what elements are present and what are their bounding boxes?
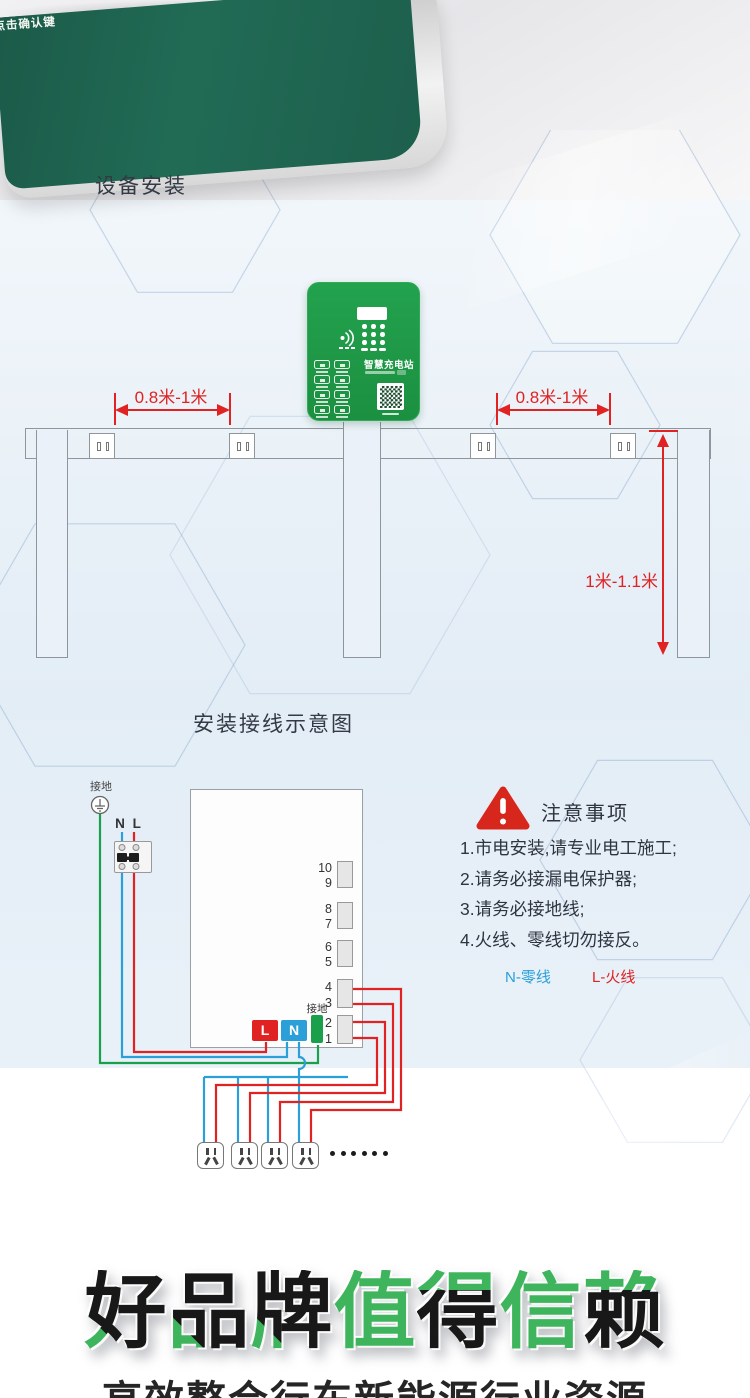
socket-slot [307, 1157, 313, 1165]
socket-slot [301, 1148, 304, 1155]
beam-leg-left [36, 430, 68, 658]
footer-headline: 好品牌值得信赖 [0, 1270, 750, 1356]
product-detail-image: 点击确认键 设备安装 安装接线示意图 智慧充电站 0.8米-1米 0.8米-1米… [0, 0, 750, 1398]
keypad-dash [370, 348, 377, 351]
device-button [314, 405, 330, 414]
legend-live: L-火线 [592, 966, 662, 987]
charging-station-photo: 点击确认键 [0, 0, 462, 218]
legend-neutral: N-零线 [505, 966, 575, 987]
notice-item: 2.请务必接漏电保护器; [460, 864, 750, 895]
keypad-dash [361, 348, 368, 351]
terminal-number: 3 [310, 996, 332, 1010]
terminal-block [337, 940, 353, 967]
terminal-block [337, 902, 353, 929]
socket-slot [276, 1157, 282, 1165]
ground-label: 接地 [86, 778, 116, 794]
device-button-label [316, 416, 328, 418]
ellipsis-dot [372, 1151, 377, 1156]
keypad-dot [371, 340, 376, 345]
socket-slot [299, 1157, 305, 1165]
device-button-label [316, 371, 328, 373]
device-button [314, 360, 330, 369]
headline-char: 品 [167, 1270, 250, 1356]
device-button-label [336, 386, 348, 388]
power-socket [231, 1142, 258, 1169]
keypad-dot [362, 340, 367, 345]
device-brand-title: 智慧充电站 [364, 357, 414, 371]
section-title-wiring: 安装接线示意图 [193, 708, 354, 738]
ellipsis-dot [362, 1151, 367, 1156]
keypad-dot [380, 324, 385, 329]
wall-socket-slot [478, 442, 482, 451]
wall-socket [610, 433, 636, 459]
terminal-number: 8 [310, 902, 332, 916]
wall-socket-slot [246, 442, 250, 451]
socket-slot [238, 1157, 244, 1165]
section-title-install: 设备安装 [95, 170, 187, 200]
device-front-panel [0, 0, 423, 190]
socket-slot [246, 1157, 252, 1165]
dimension-label-right: 0.8米-1米 [491, 383, 613, 408]
keypad-dot [380, 332, 385, 337]
socket-slot [268, 1157, 274, 1165]
dimension-label-left: 0.8米-1米 [110, 383, 232, 408]
keypad-dot [380, 340, 385, 345]
terminal-number: 7 [310, 917, 332, 931]
notice-title: 注意事项 [541, 797, 629, 826]
ellipsis-dot [330, 1151, 335, 1156]
ellipsis-dot [341, 1151, 346, 1156]
headline-char: 好 [84, 1270, 167, 1356]
qr-pattern [380, 386, 402, 408]
qr-label-strip [382, 413, 399, 416]
device-button [334, 405, 350, 414]
device-button-label [336, 401, 348, 403]
device-button [334, 390, 350, 399]
dimension-label-vertical: 1米-1.1米 [574, 567, 658, 592]
beam-leg-middle [343, 422, 381, 658]
wall-socket [470, 433, 496, 459]
keypad-dot [362, 332, 367, 337]
device-button-label [336, 371, 348, 373]
device-button [334, 375, 350, 384]
socket-slot [270, 1148, 273, 1155]
charging-station-illustration: 智慧充电站 [307, 282, 420, 421]
socket-slot [206, 1148, 209, 1155]
terminal-number: 6 [310, 940, 332, 954]
device-subtitle-strip [365, 371, 395, 374]
socket-slot [248, 1148, 251, 1155]
wall-socket [89, 433, 115, 459]
nfc-icon [336, 327, 362, 351]
terminal-number: 5 [310, 955, 332, 969]
socket-slot [309, 1148, 312, 1155]
notice-item: 1.市电安装,请专业电工施工; [460, 833, 750, 864]
notice-item: 4.火线、零线切勿接反。 [460, 925, 750, 956]
socket-slot [212, 1157, 218, 1165]
power-socket [292, 1142, 319, 1169]
device-button [314, 375, 330, 384]
headline-char: 值 [333, 1270, 416, 1356]
terminal-block [337, 861, 353, 888]
headline-char: 得 [417, 1270, 500, 1356]
headline-char: 赖 [583, 1270, 666, 1356]
qr-code [377, 383, 404, 410]
wall-socket [229, 433, 255, 459]
device-button-label [316, 386, 328, 388]
power-socket [261, 1142, 288, 1169]
power-socket [197, 1142, 224, 1169]
terminal-n: N [281, 1020, 307, 1041]
wall-socket-slot [106, 442, 110, 451]
terminal-number: 9 [310, 876, 332, 890]
ellipsis-dot [351, 1151, 356, 1156]
socket-slot [214, 1148, 217, 1155]
headline-char: 牌 [250, 1270, 333, 1356]
wall-socket-slot [627, 442, 631, 451]
device-button-label [316, 401, 328, 403]
device-button-label [336, 416, 348, 418]
device-button [334, 360, 350, 369]
nl-labels: N L [112, 816, 146, 831]
socket-slot [278, 1148, 281, 1155]
wall-socket-slot [97, 442, 101, 451]
notice-item: 3.请务必接地线; [460, 894, 750, 925]
wall-socket-slot [237, 442, 241, 451]
wall-socket-slot [487, 442, 491, 451]
keypad-dot [362, 324, 367, 329]
circuit-breaker [114, 841, 152, 873]
device-display [357, 307, 387, 320]
keypad-dot [371, 332, 376, 337]
socket-slot [204, 1157, 210, 1165]
device-subtitle-badge [397, 370, 406, 375]
keypad-dot [371, 324, 376, 329]
terminal-number: 1 [310, 1032, 332, 1046]
terminal-number: 4 [310, 980, 332, 994]
terminal-number: 10 [310, 861, 332, 875]
socket-slot [240, 1148, 243, 1155]
footer-subtitle: 高效整合行车新能源行业资源 [0, 1368, 750, 1398]
ellipsis-dot [383, 1151, 388, 1156]
headline-char: 信 [500, 1270, 583, 1356]
notice-list: 1.市电安装,请专业电工施工;2.请务必接漏电保护器;3.请务必接地线;4.火线… [460, 833, 750, 955]
wall-socket-slot [618, 442, 622, 451]
device-button [314, 390, 330, 399]
terminal-block [337, 1015, 353, 1044]
beam-leg-right [677, 430, 710, 658]
terminal-l: L [252, 1020, 278, 1041]
keypad-dash [379, 348, 386, 351]
terminal-number: 2 [310, 1016, 332, 1030]
terminal-block [337, 979, 353, 1008]
